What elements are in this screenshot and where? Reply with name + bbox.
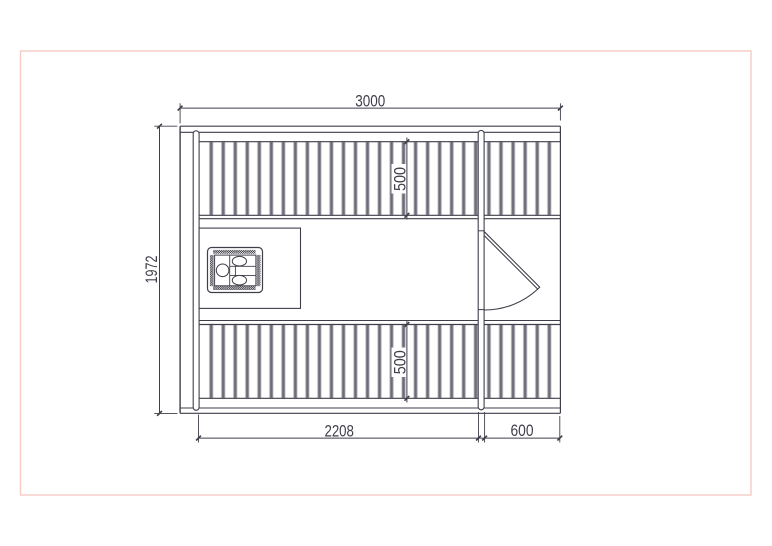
svg-text:500: 500 [391, 167, 410, 191]
svg-text:600: 600 [511, 421, 534, 440]
svg-text:2208: 2208 [324, 421, 354, 440]
svg-text:500: 500 [391, 350, 410, 374]
svg-text:3000: 3000 [355, 92, 385, 111]
svg-text:1972: 1972 [142, 256, 161, 284]
